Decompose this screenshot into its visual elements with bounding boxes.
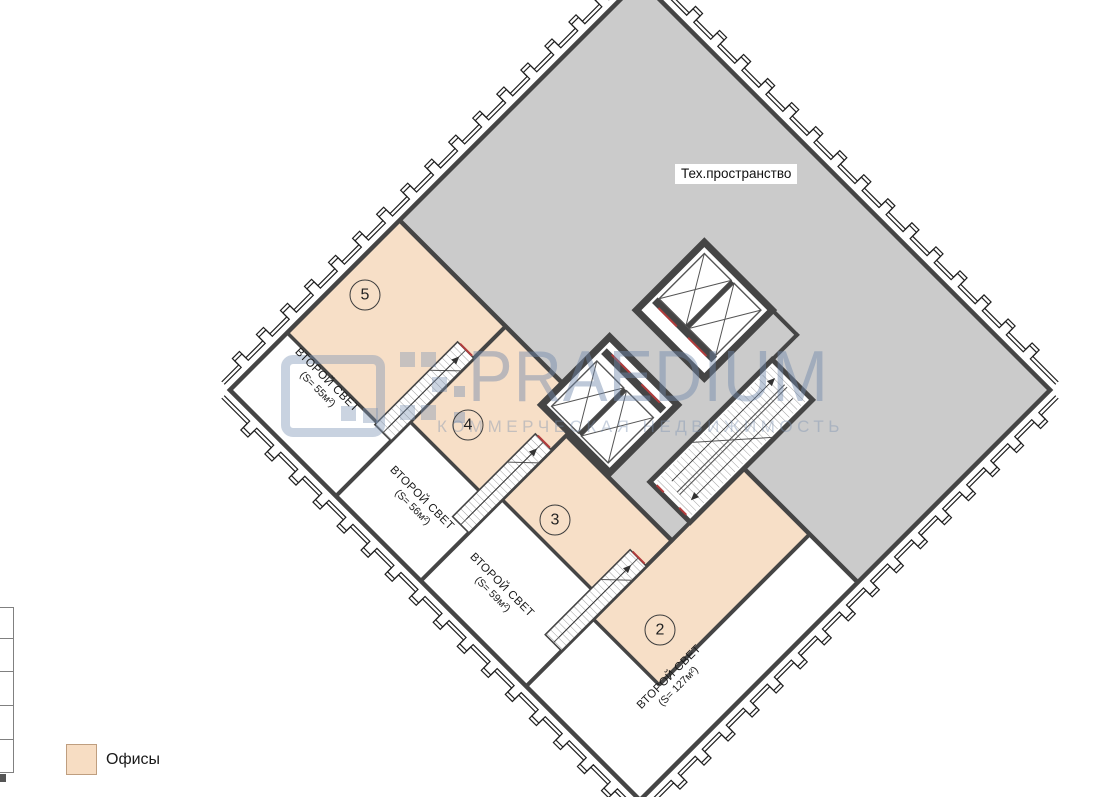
legend-office-label: Офисы	[106, 751, 160, 769]
office-2-number: 2	[645, 615, 676, 646]
floor-plan-page: PRAEDIUM КОММЕРЧЕСКАЯ НЕДВИЖИМОСТЬ Тех.п…	[0, 0, 1105, 797]
office-5-number: 5	[350, 280, 381, 311]
legend: Офисы	[66, 744, 160, 775]
floor-plan-drawing	[0, 0, 1105, 797]
office-3-number: 3	[540, 505, 571, 536]
tech-space-label: Тех.пространство	[675, 164, 797, 184]
legend-office-swatch	[66, 744, 97, 775]
office-4-number: 4	[453, 410, 484, 441]
